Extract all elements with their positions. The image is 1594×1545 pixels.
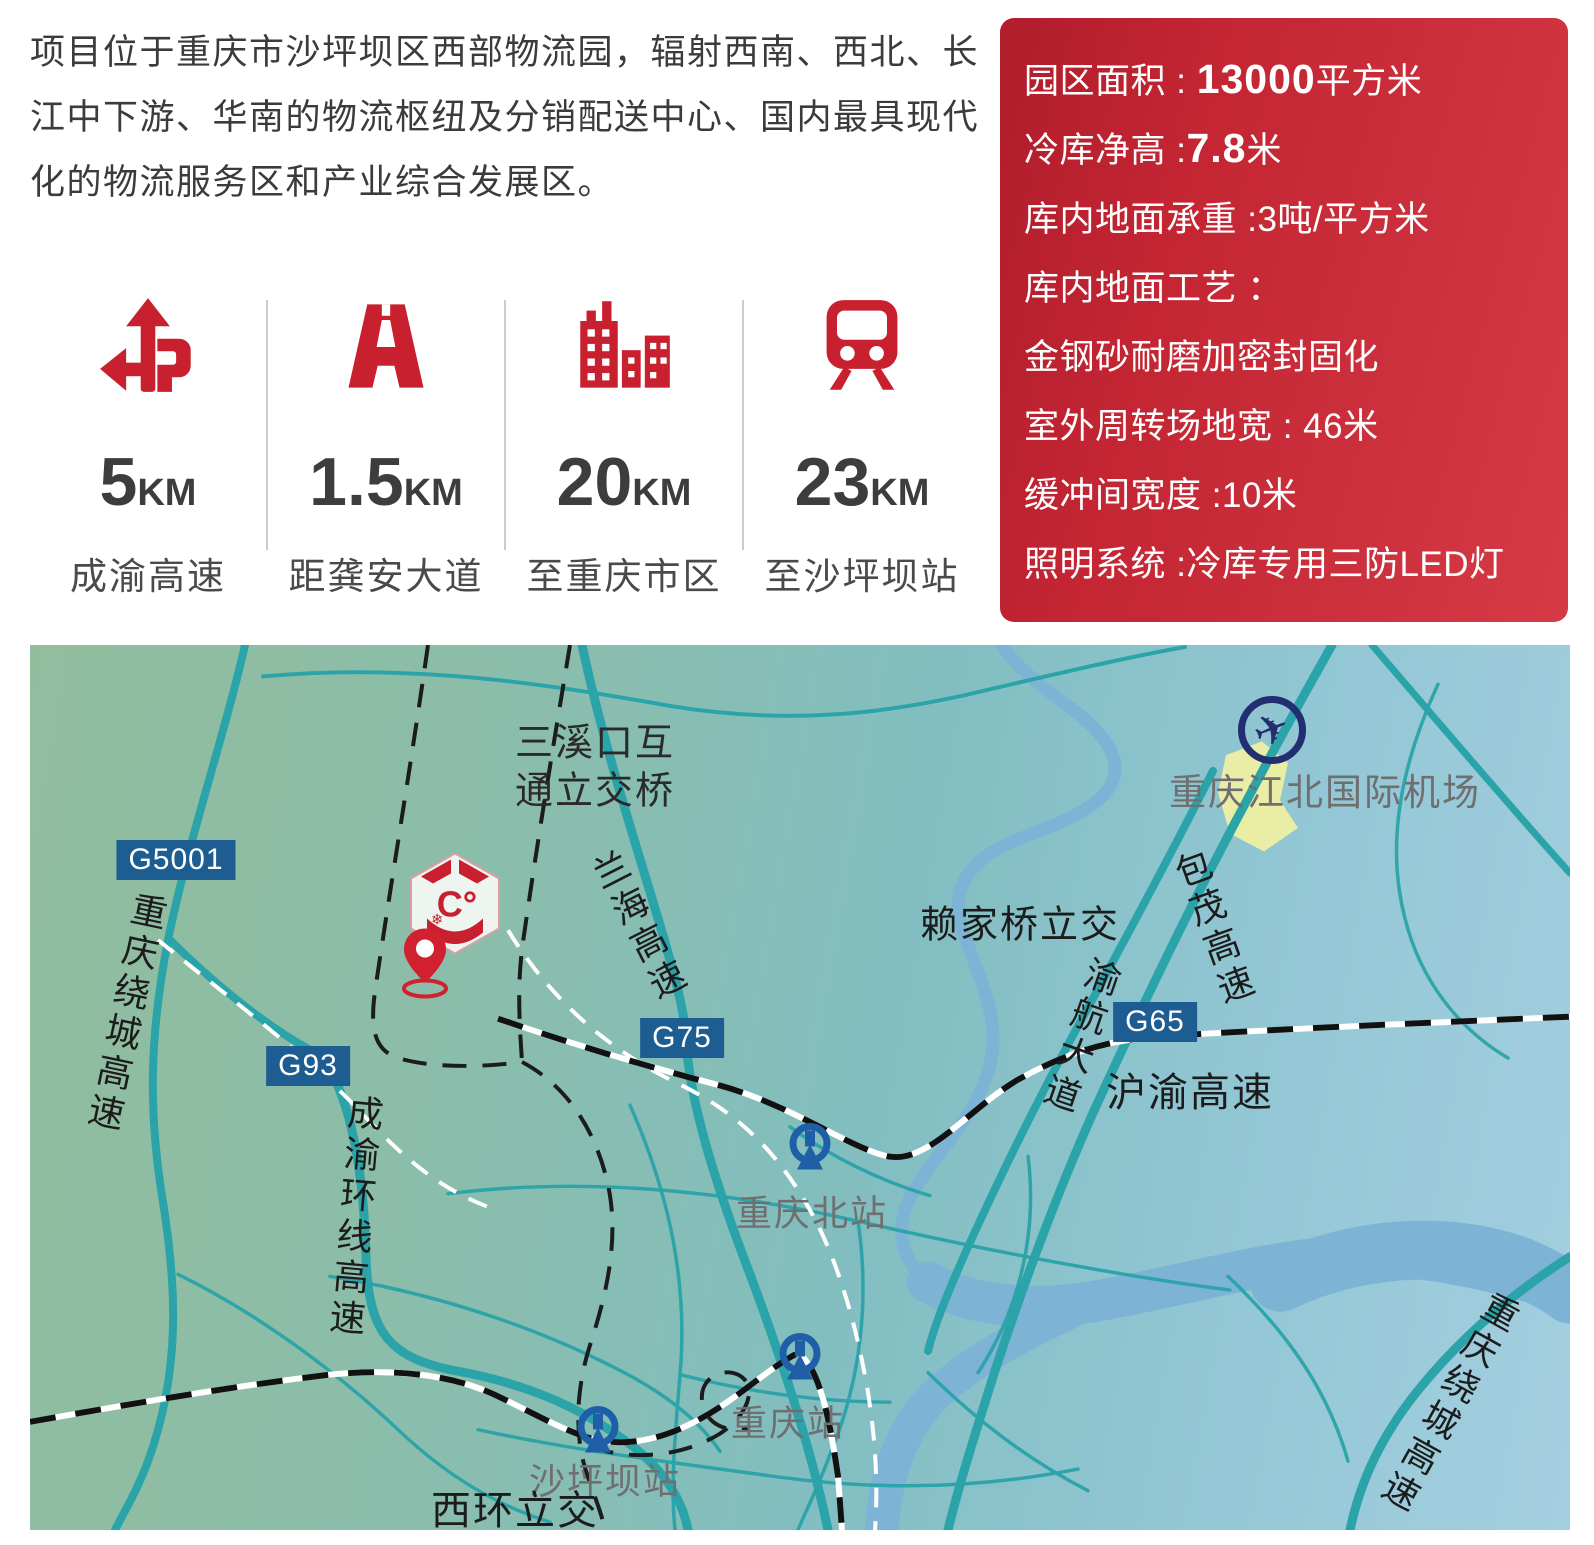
airplane-glyph: ✈: [1248, 704, 1296, 756]
label-chongqing-station: 重庆站: [731, 1401, 845, 1446]
road-g93-link: [170, 940, 322, 1056]
stat-chongqing-downtown: 20KM 至重庆市区: [506, 296, 742, 600]
label-sanxikou-line1: 三溪口互: [515, 721, 675, 769]
spec-yard-width: 室外周转场地宽 : 46米: [1024, 391, 1544, 460]
label-chongqing-north-station: 重庆北站: [736, 1191, 888, 1236]
spec-area: 园区面积 : 13000平方米: [1024, 46, 1544, 115]
junction-icon: [98, 296, 198, 432]
badge-g5001: G5001: [116, 840, 235, 880]
spec-floor-load: 库内地面承重 :3吨/平方米: [1024, 184, 1544, 253]
stat-value: 20KM: [557, 448, 692, 516]
spec-floor-craft-detail: 金钢砂耐磨加密封固化: [1024, 322, 1544, 391]
intro-paragraph: 项目位于重庆市沙坪坝区西部物流园，辐射西南、西北、长江中下游、华南的物流枢纽及分…: [30, 20, 980, 215]
stat-chengyu-expressway: 5KM 成渝高速: [30, 296, 266, 600]
city-icon: [574, 296, 674, 432]
stat-value: 5KM: [100, 448, 197, 516]
stat-gongan-avenue: 1.5KM 距龚安大道: [268, 296, 504, 600]
label-sanxikou-interchange: 三溪口互 通立交桥: [515, 721, 675, 816]
stat-label: 成渝高速: [70, 546, 226, 600]
road-north-link: [263, 647, 1185, 716]
label-laijiaqiao-interchange: 赖家桥立交: [920, 902, 1120, 950]
distance-stats-row: 5KM 成渝高速 1.5KM 距龚安大道: [30, 296, 980, 600]
railway-station-icon-north: [785, 1121, 835, 1180]
stat-label: 距龚安大道: [289, 546, 484, 600]
stat-value: 23KM: [795, 448, 930, 516]
label-jiangbei-airport: 重庆江北国际机场: [1169, 770, 1481, 816]
road-raocheng-ne: [1372, 645, 1570, 873]
badge-g75: G75: [640, 1018, 724, 1058]
airport-icon: ✈: [1238, 696, 1306, 764]
railway-station-icon-shapingba: [573, 1404, 623, 1463]
highway-icon: [336, 296, 436, 432]
railway-station-icon-chongqing: [775, 1331, 825, 1390]
spec-floor-craft: 库内地面工艺 ：: [1024, 253, 1544, 322]
label-huyu-expressway: 沪渝高速: [1106, 1068, 1274, 1118]
stat-shapingba-station: 23KM 至沙坪坝站: [744, 296, 980, 600]
label-sanxikou-line2: 通立交桥: [515, 768, 675, 816]
stat-value: 1.5KM: [309, 448, 463, 516]
specs-panel: 园区面积 : 13000平方米 冷库净高 :7.8米 库内地面承重 :3吨/平方…: [1000, 18, 1568, 622]
stat-label: 至沙坪坝站: [765, 546, 960, 600]
badge-g93: G93: [266, 1046, 350, 1086]
location-pin-icon: [399, 927, 451, 1004]
spec-lighting: 照明系统 :冷库专用三防LED灯: [1024, 529, 1544, 598]
train-icon: [812, 296, 912, 432]
stat-label: 至重庆市区: [527, 546, 722, 600]
location-map: G5001 G93 G75 G65 三溪口互 通立交桥 重庆绕城高速 成渝环线高…: [30, 645, 1570, 1530]
spec-clear-height: 冷库净高 :7.8米: [1024, 115, 1544, 184]
badge-g65: G65: [1113, 1002, 1197, 1042]
spec-buffer-width: 缓冲间宽度 :10米: [1024, 460, 1544, 529]
label-xihuan-interchange: 西环立交: [431, 1486, 599, 1530]
